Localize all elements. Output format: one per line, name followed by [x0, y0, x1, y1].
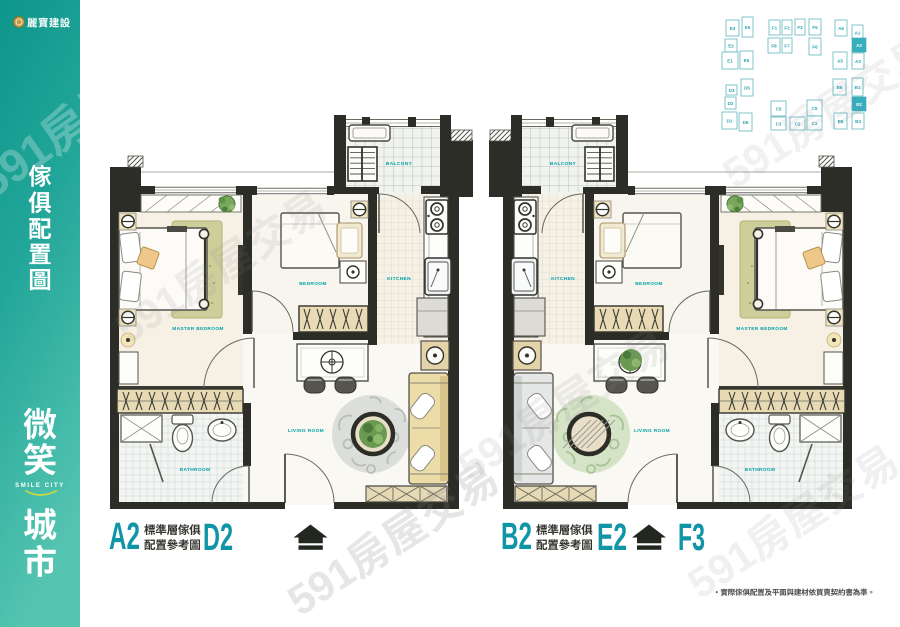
svg-text:F8: F8: [771, 43, 777, 48]
svg-text:F6: F6: [812, 44, 818, 49]
svg-text:E5: E5: [745, 25, 751, 30]
svg-text:D2: D2: [203, 517, 233, 559]
svg-text:E2: E2: [728, 43, 734, 48]
svg-text:C5: C5: [812, 106, 818, 111]
svg-text:BEDROOM: BEDROOM: [299, 281, 327, 287]
svg-text:F5: F5: [812, 25, 818, 30]
svg-text:F7: F7: [784, 43, 790, 48]
svg-text:D6: D6: [743, 120, 749, 125]
svg-text:F3: F3: [797, 25, 803, 30]
svg-text:A3: A3: [855, 59, 861, 64]
svg-text:D5: D5: [744, 85, 750, 90]
svg-text:KITCHEN: KITCHEN: [551, 276, 575, 282]
svg-text:BALCONY: BALCONY: [386, 161, 413, 167]
svg-text:B2: B2: [501, 516, 532, 558]
svg-text:A2: A2: [109, 516, 140, 558]
svg-text:BEDROOM: BEDROOM: [635, 281, 663, 287]
svg-text:MASTER BEDROOM: MASTER BEDROOM: [736, 326, 788, 332]
svg-text:C5: C5: [776, 106, 782, 111]
svg-text:A1: A1: [855, 30, 861, 35]
svg-text:A2: A2: [856, 43, 862, 48]
svg-text:LIVING ROOM: LIVING ROOM: [634, 428, 670, 434]
svg-text:E3: E3: [730, 26, 736, 31]
svg-text:LIVING ROOM: LIVING ROOM: [288, 428, 324, 434]
svg-text:D3: D3: [729, 88, 735, 93]
svg-text:MASTER BEDROOM: MASTER BEDROOM: [172, 326, 224, 332]
svg-text:KITCHEN: KITCHEN: [387, 276, 411, 282]
svg-text:A6: A6: [838, 26, 844, 31]
svg-text:F1: F1: [772, 25, 778, 30]
svg-text:BATHROOM: BATHROOM: [745, 467, 776, 473]
svg-text:F3: F3: [678, 517, 705, 559]
svg-text:E1: E1: [727, 58, 733, 63]
svg-text:SMILE CITY: SMILE CITY: [15, 483, 65, 489]
svg-text:E6: E6: [744, 58, 750, 63]
svg-text:BALCONY: BALCONY: [550, 161, 577, 167]
svg-text:A5: A5: [837, 58, 843, 63]
svg-text:D2: D2: [728, 101, 734, 106]
svg-text:B3: B3: [855, 119, 861, 124]
svg-text:F2: F2: [784, 25, 790, 30]
svg-text:D1: D1: [727, 118, 733, 123]
svg-text:E2: E2: [597, 517, 627, 559]
svg-text:BATHROOM: BATHROOM: [180, 467, 211, 473]
